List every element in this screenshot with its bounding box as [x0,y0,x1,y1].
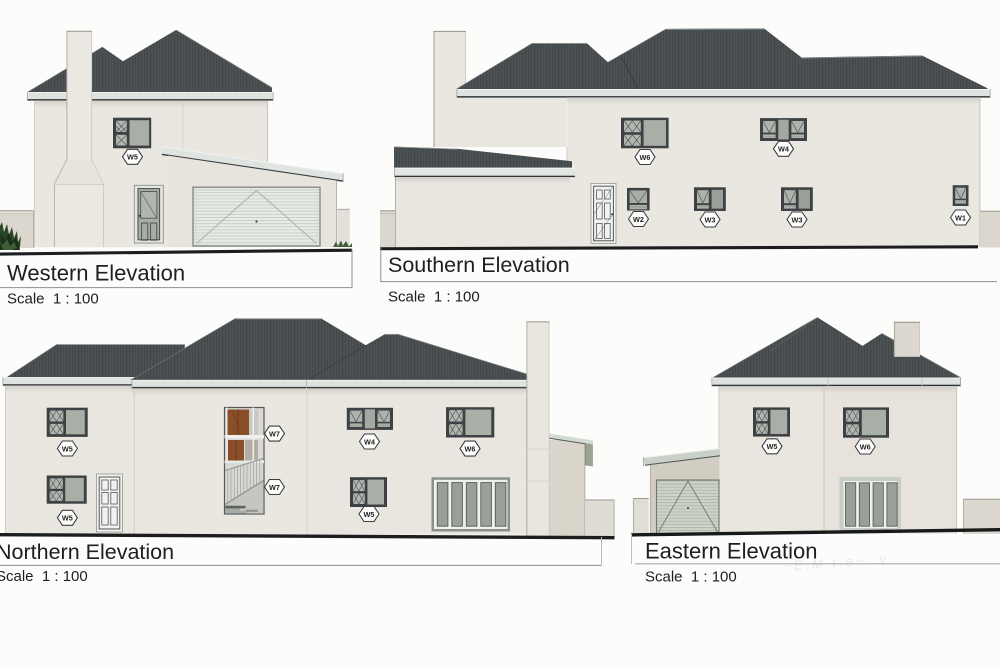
svg-text:W1: W1 [955,213,966,222]
svg-text:W5: W5 [62,444,73,453]
svg-text:Scale 1 : 100: Scale 1 : 100 [388,289,480,306]
svg-text:W4: W4 [778,145,790,154]
svg-text:W5: W5 [62,514,73,523]
svg-text:W7: W7 [269,483,280,492]
svg-text:W5: W5 [767,442,778,451]
svg-text:Scale 1 : 100: Scale 1 : 100 [7,291,99,308]
svg-text:W6: W6 [640,153,651,162]
svg-text:W3: W3 [792,215,803,224]
svg-text:W5: W5 [364,510,375,519]
svg-text:Scale 1 : 100: Scale 1 : 100 [645,569,737,586]
svg-text:Western Elevation: Western Elevation [7,261,185,286]
svg-text:W7: W7 [269,429,280,438]
svg-text:Southern Elevation: Southern Elevation [388,253,570,277]
svg-text:W4: W4 [364,437,376,446]
svg-text:W6: W6 [860,442,871,451]
svg-text:W5: W5 [127,153,138,162]
svg-text:W3: W3 [705,215,716,224]
svg-text:Northern Elevation: Northern Elevation [0,540,174,564]
svg-text:Scale 1 : 100: Scale 1 : 100 [0,568,88,585]
svg-text:W2: W2 [633,215,644,224]
svg-text:W6: W6 [465,444,476,453]
